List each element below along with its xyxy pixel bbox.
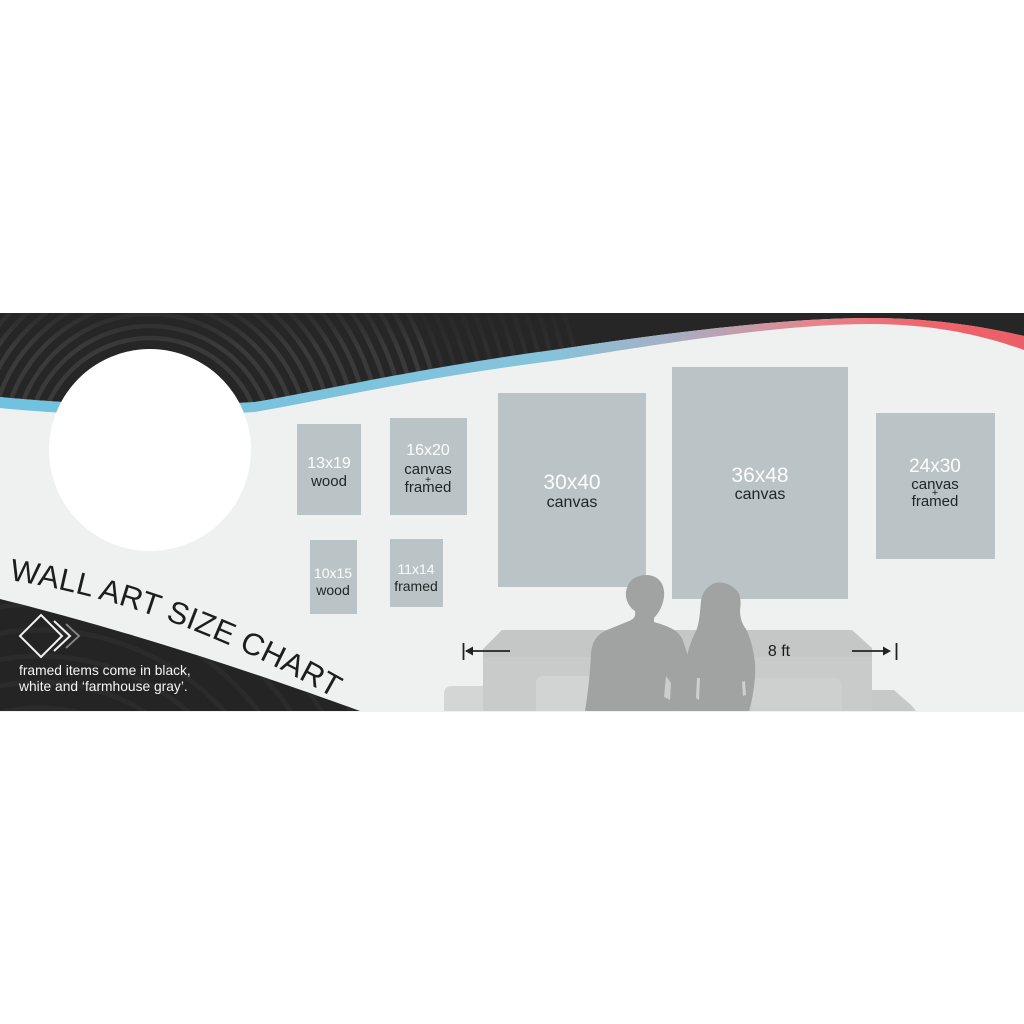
svg-text:24x30: 24x30 [909, 456, 961, 477]
svg-text:framed: framed [394, 578, 438, 594]
svg-text:30x40: 30x40 [543, 471, 600, 494]
svg-text:13x19: 13x19 [307, 455, 351, 472]
svg-text:framed: framed [912, 493, 959, 510]
svg-text:canvas: canvas [547, 494, 598, 511]
svg-text:8 ft: 8 ft [768, 643, 791, 660]
svg-text:canvas: canvas [735, 486, 786, 503]
svg-text:white and ‘farmhouse gray’.: white and ‘farmhouse gray’. [18, 679, 188, 694]
svg-text:36x48: 36x48 [731, 464, 788, 487]
svg-text:10x15: 10x15 [314, 565, 352, 581]
svg-text:framed items come in black,: framed items come in black, [19, 663, 191, 678]
svg-text:16x20: 16x20 [406, 442, 450, 459]
svg-text:11x14: 11x14 [397, 561, 434, 577]
svg-text:framed: framed [405, 479, 452, 496]
svg-text:wood: wood [310, 473, 347, 490]
svg-text:wood: wood [315, 582, 349, 598]
